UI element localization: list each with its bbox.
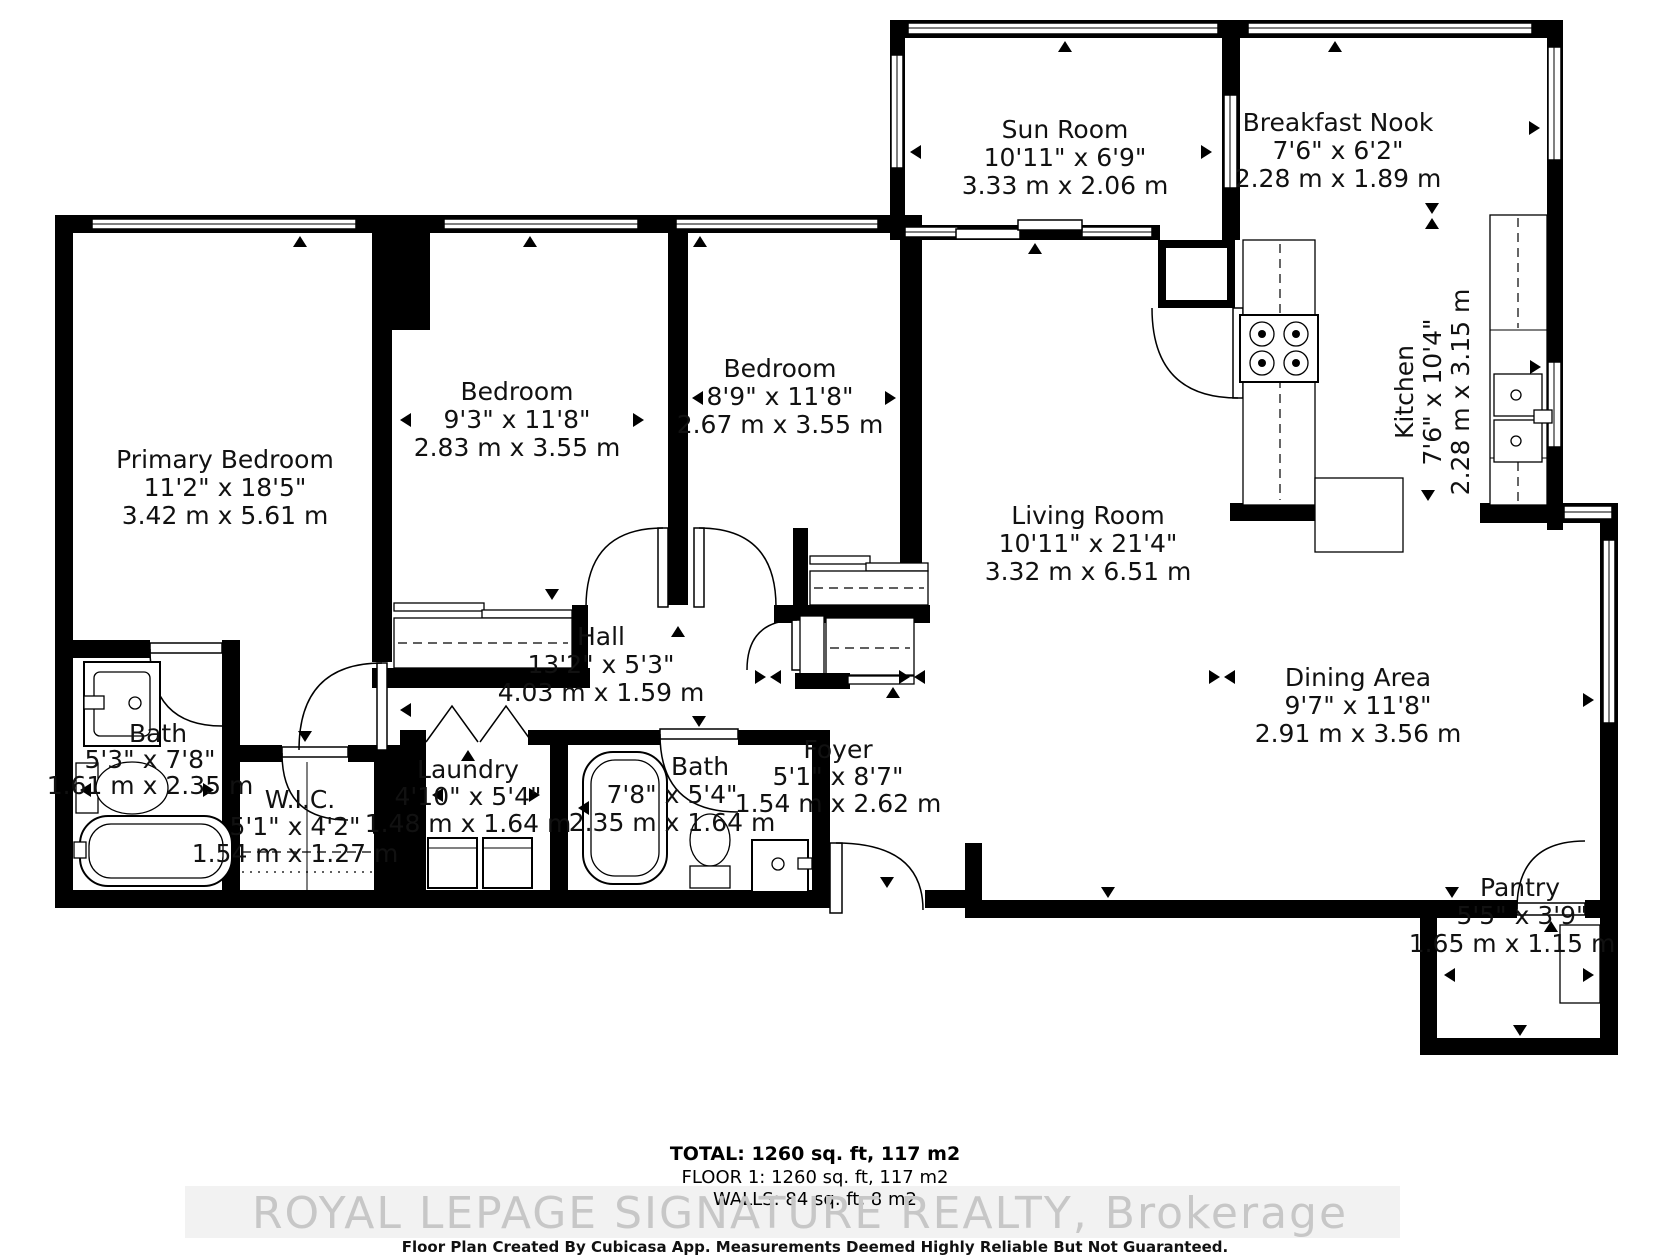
room-label-living-room: Living Room10'11" x 21'4"3.32 m x 6.51 m [985, 501, 1192, 586]
kitchen-island-cabinet [1315, 478, 1403, 552]
door-entry [830, 843, 923, 913]
door-hall-closet [747, 620, 802, 670]
stove [1240, 315, 1318, 382]
opening-marker-hall-foyer [755, 670, 781, 684]
window-breakfast-top [1248, 23, 1532, 34]
room-label-bedroom1: Bedroom9'3" x 11'8"2.83 m x 3.55 m [414, 377, 621, 462]
total-area-text: TOTAL: 1260 sq. ft, 117 m2 [670, 1143, 960, 1165]
bathroom-sink-2 [752, 840, 812, 892]
bedroom2-closet [810, 556, 928, 605]
door-bedroom2 [694, 528, 776, 607]
window-bedroom1-top [444, 219, 638, 229]
hall-closet [795, 616, 914, 689]
dryer [483, 838, 532, 888]
kitchen-closet-inset [1166, 248, 1227, 300]
window-sunroom-top [908, 23, 1218, 34]
washer [428, 838, 477, 888]
window-sunroom-left [891, 55, 903, 168]
window-bedroom2-top [676, 219, 878, 229]
window-dining-top-bump [1564, 506, 1612, 519]
window-primary-top [92, 219, 356, 229]
window-sunroom-bottom-left [905, 227, 958, 237]
room-label-foyer: Foyer5'1" x 8'7"1.54 m x 2.62 m [735, 735, 942, 818]
room-label-primary-bedroom: Primary Bedroom11'2" x 18'5"3.42 m x 5.6… [116, 445, 334, 530]
window-dining-right [1603, 540, 1615, 723]
bifold-doors [426, 706, 532, 742]
window-sunroom-bottom-right [1082, 227, 1152, 237]
floor-area-text: FLOOR 1: 1260 sq. ft, 117 m2 [682, 1167, 949, 1188]
window-kitchen-right [1548, 362, 1561, 447]
floor-plan: Sun Room10'11" x 6'9"3.33 m x 2.06 m Bre… [0, 0, 1680, 1260]
window-breakfast-right [1548, 47, 1561, 160]
room-label-sun-room: Sun Room10'11" x 6'9"3.33 m x 2.06 m [962, 115, 1169, 200]
room-label-kitchen: Kitchen7'6" x 10'4"2.28 m x 3.15 m [1390, 289, 1475, 496]
room-label-bedroom2: Bedroom8'9" x 11'8"2.67 m x 3.55 m [677, 354, 884, 439]
opening-marker-living-dining [1209, 670, 1235, 684]
door-bedroom1 [586, 528, 668, 607]
room-label-dining-area: Dining Area9'7" x 11'8"2.91 m x 3.56 m [1255, 663, 1462, 748]
brokerage-watermark: ROYAL LEPAGE SIGNATURE REALTY, Brokerage [252, 1188, 1348, 1239]
room-label-breakfast-nook: Breakfast Nook7'6" x 6'2"2.28 m x 1.89 m [1235, 108, 1442, 193]
door-kitchen [1152, 308, 1243, 398]
disclaimer-text: Floor Plan Created By Cubicasa App. Meas… [402, 1238, 1229, 1256]
opening-marker-breakfast [1425, 203, 1439, 229]
